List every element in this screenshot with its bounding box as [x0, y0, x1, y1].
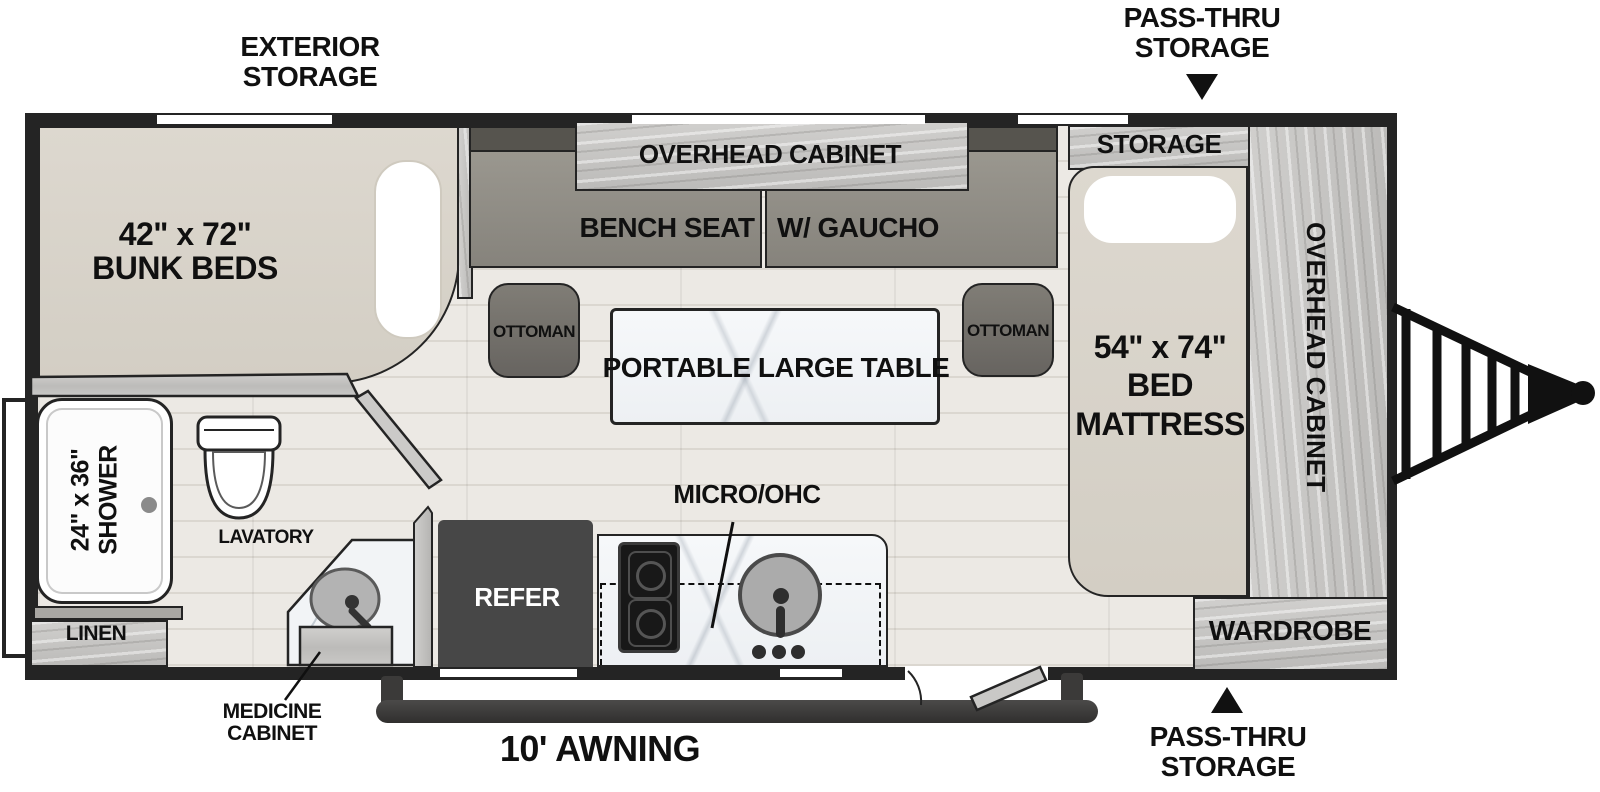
window-opening [157, 115, 332, 124]
callout-pass-thru-top: PASS-THRUSTORAGE [1124, 3, 1281, 62]
shower-shelf [33, 606, 183, 620]
stove-cooktop [618, 542, 680, 653]
entry-door-opening [905, 666, 1048, 681]
arrow-down-icon [1186, 74, 1218, 100]
bed-pillow [1084, 176, 1236, 243]
callout-exterior-storage: EXTERIORSTORAGE [240, 32, 379, 91]
window-opening [780, 669, 842, 677]
bed-label: 54" x 74"BEDMATTRESS [1075, 328, 1245, 443]
window-opening [440, 669, 577, 677]
ottoman-left-label: OTTOMAN [493, 323, 575, 341]
storage-label: STORAGE [1097, 131, 1222, 159]
linen-label: LINEN [66, 623, 127, 645]
hitch-tongue [1393, 307, 1568, 481]
shower-label: 24" x 36"SHOWER [68, 445, 123, 555]
portable-table-label: PORTABLE LARGE TABLE [603, 353, 950, 383]
burner-icon [628, 599, 672, 647]
callout-pass-thru-bottom: PASS-THRUSTORAGE [1150, 722, 1307, 781]
arrow-up-icon [1211, 687, 1243, 713]
burner-icon [628, 551, 672, 599]
callout-medicine-cabinet: MEDICINECABINET [223, 701, 322, 746]
window-opening [1018, 115, 1128, 124]
wardrobe-label: WARDROBE [1209, 616, 1371, 646]
hitch-ball-icon [1571, 381, 1595, 405]
gaucho-label: W/ GAUCHO [777, 213, 939, 243]
ottoman-right-label: OTTOMAN [967, 322, 1049, 340]
awning-bar [376, 700, 1098, 723]
shower-drain [141, 497, 157, 513]
overhead-cabinet-label: OVERHEAD CABINET [639, 141, 901, 169]
bunk-window [374, 160, 442, 339]
refer-label: REFER [474, 584, 560, 612]
callout-awning: 10' AWNING [500, 730, 700, 768]
hitch-tip [1528, 364, 1582, 424]
bench-seat-label: BENCH SEAT [580, 213, 755, 243]
window-opening [632, 115, 925, 124]
lavatory-label: LAVATORY [218, 528, 313, 548]
floorplan-canvas: 42" x 72"BUNK BEDS BENCH SEAT W/ GAUCHO … [0, 0, 1600, 792]
overhead-cabinet-side-label: OVERHEAD CABINET [1300, 222, 1331, 492]
bunk-beds-label: 42" x 72"BUNK BEDS [92, 218, 278, 286]
micro-ohc-label: MICRO/OHC [673, 481, 820, 509]
